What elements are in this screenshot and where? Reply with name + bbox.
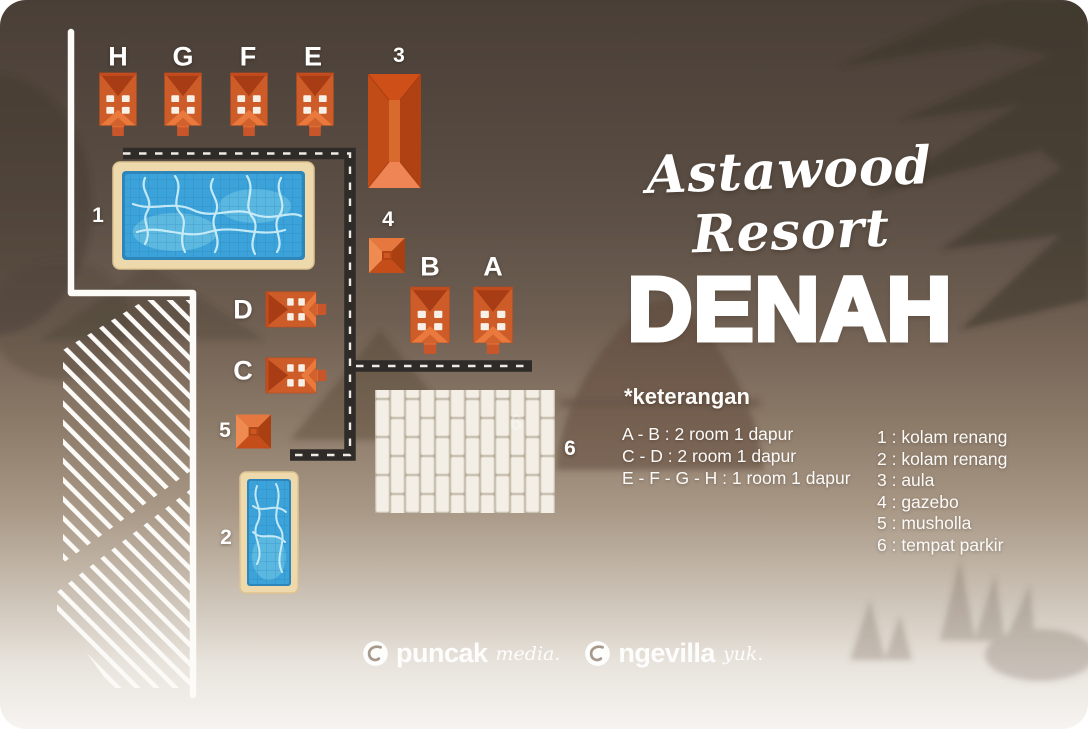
building-cabin-b [410, 287, 449, 354]
pool-2 [240, 472, 298, 593]
legend-heading: *keterangan [624, 384, 750, 410]
pool-1 [113, 162, 314, 269]
building-cabin-g [165, 73, 202, 136]
label-building-5: 5 [219, 419, 231, 443]
poster-title: DENAH [575, 268, 1005, 354]
resort-name-script: Astawood Resort [573, 133, 1007, 270]
brand-puncak: puncak [396, 638, 488, 669]
building-cabin-e [297, 73, 334, 136]
label-parking-6: 6 [564, 437, 576, 461]
legend-item: 1 : kolam renang [877, 427, 1007, 449]
legend-item: 3 : aula [877, 470, 1007, 492]
ngevilla-logo-icon [584, 640, 611, 667]
building-aula [368, 74, 421, 188]
title-block: Astawood Resort DENAH [575, 140, 1005, 354]
legend-numbered-items: 1 : kolam renang 2 : kolam renang 3 : au… [877, 427, 1007, 556]
label-building-d: D [233, 295, 253, 326]
label-pool-2: 2 [220, 526, 232, 550]
label-pool-1: 1 [92, 204, 104, 228]
hatched-garden-area [57, 300, 192, 688]
legend-room-note: A - B : 2 room 1 dapur [622, 423, 851, 445]
legend-item: 6 : tempat parkir [877, 535, 1007, 557]
legend-room-note: C - D : 2 room 1 dapur [622, 445, 851, 467]
label-building-4: 4 [382, 208, 394, 232]
parking-watermark: 6 [510, 410, 522, 435]
brand-ngevilla: ngevilla [618, 638, 715, 669]
building-cabin-h [100, 73, 137, 136]
legend-room-note: E - F - G - H : 1 room 1 dapur [622, 467, 851, 489]
label-building-b: B [420, 252, 440, 283]
brand-ngevilla-suffix: yuk. [723, 643, 764, 665]
label-building-h: H [108, 42, 128, 73]
site-map: 6 [0, 0, 1088, 729]
legend-room-notes: A - B : 2 room 1 dapur C - D : 2 room 1 … [622, 423, 851, 489]
label-building-g: G [172, 42, 193, 73]
legend-item: 2 : kolam renang [877, 449, 1007, 471]
label-building-c: C [233, 356, 253, 387]
building-cabin-a [473, 287, 512, 354]
label-building-e: E [304, 42, 322, 73]
building-cabin-c [266, 358, 326, 393]
brand-puncak-suffix: media. [496, 643, 561, 665]
label-building-3: 3 [393, 44, 405, 68]
footer-brands: puncak media. ngevilla yuk. [362, 638, 763, 669]
puncakmedia-logo-icon [362, 640, 389, 667]
building-musholla [236, 414, 271, 448]
building-cabin-f [231, 73, 268, 136]
label-building-a: A [483, 252, 503, 283]
building-cabin-d [266, 292, 326, 327]
legend-item: 4 : gazebo [877, 492, 1007, 514]
parking-area: 6 [375, 390, 555, 513]
resort-map-poster: 6 [0, 0, 1088, 729]
legend-item: 5 : musholla [877, 513, 1007, 535]
building-gazebo [369, 238, 405, 273]
label-building-f: F [240, 42, 257, 73]
